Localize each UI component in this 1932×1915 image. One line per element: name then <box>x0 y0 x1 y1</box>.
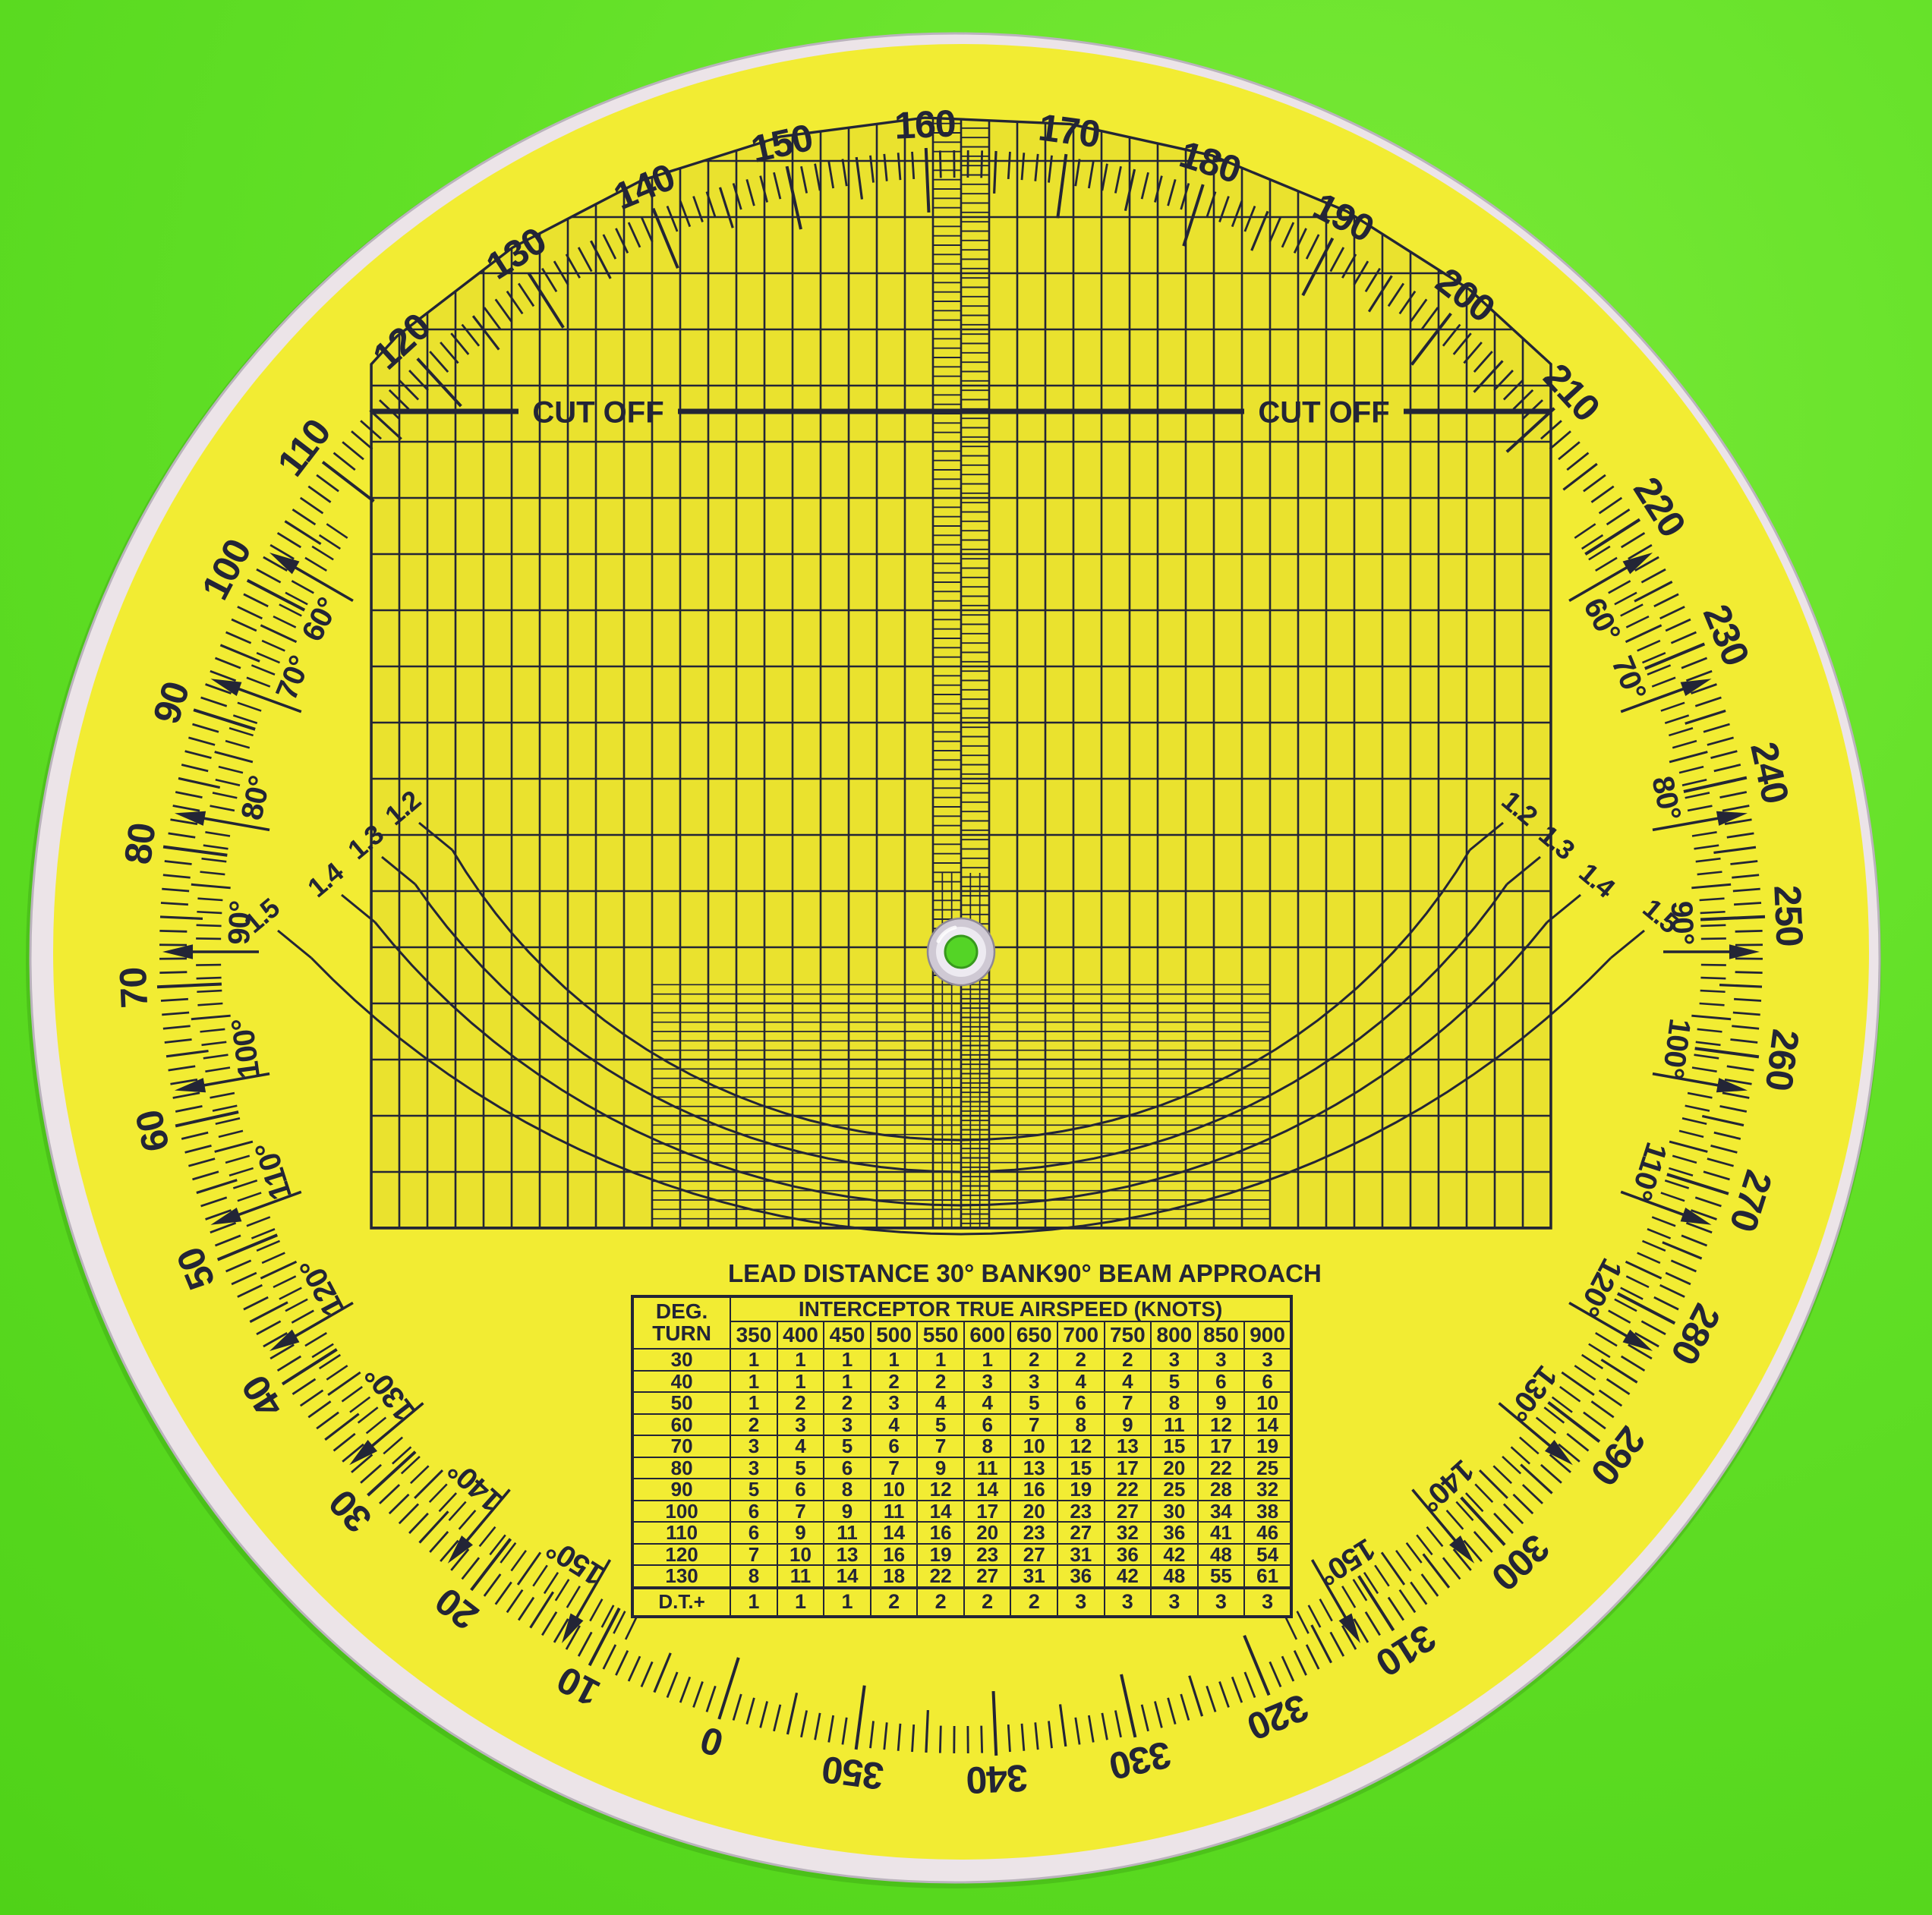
lead-distance-cell: 12 <box>917 1479 964 1501</box>
lead-distance-cell: 4 <box>964 1392 1011 1414</box>
outer-scale-label-text: 340 <box>966 1756 1029 1801</box>
speed-column-header: 550 <box>917 1321 964 1349</box>
table-row: 100679111417202327303438 <box>632 1501 1291 1523</box>
lead-distance-cell: 20 <box>964 1522 1011 1544</box>
lead-distance-cell: 3 <box>730 1457 777 1479</box>
lead-distance-cell: 48 <box>1151 1565 1198 1588</box>
lead-distance-cell: 23 <box>1057 1501 1105 1523</box>
outer-scale-label-text: 80 <box>116 820 164 866</box>
lead-distance-cell: 6 <box>777 1479 824 1501</box>
lead-distance-cell: 46 <box>1244 1522 1291 1544</box>
lead-distance-cell: 23 <box>1010 1522 1057 1544</box>
outer-scale-tick <box>159 972 187 973</box>
outer-scale-label-text: 250 <box>1766 884 1811 947</box>
outer-scale-tick <box>1735 931 1763 931</box>
lead-distance-cell: 11 <box>871 1501 918 1523</box>
lead-distance-cell: 2 <box>1057 1349 1105 1371</box>
lead-distance-cell: 54 <box>1244 1544 1291 1566</box>
lead-distance-cell: 5 <box>1151 1371 1198 1393</box>
lead-distance-cell: 14 <box>964 1479 1011 1501</box>
outer-scale-tick <box>1735 972 1763 973</box>
lead-distance-cell: 12 <box>1057 1435 1105 1457</box>
lead-distance-cell: 4 <box>1105 1371 1152 1393</box>
lead-distance-cell: 1 <box>777 1349 824 1371</box>
inner-scale-tick <box>196 965 221 965</box>
deg-turn-cell: 130 <box>632 1565 730 1588</box>
lead-distance-cell: 6 <box>1244 1371 1291 1393</box>
inner-scale-label-text: 90° <box>222 900 257 945</box>
table-row: 13081114182227313642485561 <box>632 1565 1291 1588</box>
table-row: 40111223344566 <box>632 1371 1291 1393</box>
inner-scale-tick <box>1701 938 1726 939</box>
lead-distance-cell: 11 <box>824 1522 871 1544</box>
lead-distance-cell: 1 <box>917 1349 964 1371</box>
lead-distance-cell: 1 <box>964 1349 1011 1371</box>
lead-distance-cell: 6 <box>730 1501 777 1523</box>
lead-distance-cell: 3 <box>964 1371 1011 1393</box>
lead-distance-cell: 16 <box>917 1522 964 1544</box>
dt-value-cell: 3 <box>1105 1588 1152 1617</box>
lead-distance-cell: 15 <box>1057 1457 1105 1479</box>
lead-distance-cell: 30 <box>1151 1501 1198 1523</box>
inner-scale-tick <box>1700 978 1726 978</box>
lead-distance-cell: 13 <box>1010 1457 1057 1479</box>
lead-distance-cell: 6 <box>871 1435 918 1457</box>
dt-value-cell: 3 <box>1244 1588 1291 1617</box>
cutoff-label: CUT OFF <box>1258 395 1389 429</box>
lead-distance-cell: 1 <box>730 1371 777 1393</box>
lead-distance-cell: 6 <box>1057 1392 1105 1414</box>
dt-value-cell: 2 <box>871 1588 918 1617</box>
lead-distance-cell: 18 <box>871 1565 918 1588</box>
lead-distance-cell: 11 <box>964 1457 1011 1479</box>
lead-distance-cell: 22 <box>917 1565 964 1588</box>
dt-row-label: D.T.+ <box>632 1588 730 1617</box>
lead-distance-cell: 22 <box>1198 1457 1245 1479</box>
lead-distance-cell: 10 <box>1244 1392 1291 1414</box>
lead-distance-cell: 6 <box>730 1522 777 1544</box>
outer-scale-label-text: 260 <box>1757 1027 1808 1093</box>
lead-distance-cell: 55 <box>1198 1565 1245 1588</box>
deg-turn-cell: 90 <box>632 1479 730 1501</box>
lead-distance-cell: 9 <box>824 1501 871 1523</box>
table-row: 803567911131517202225 <box>632 1457 1291 1479</box>
lead-distance-cell: 32 <box>1244 1479 1291 1501</box>
lead-distance-cell: 1 <box>871 1349 918 1371</box>
dt-value-cell: 1 <box>777 1588 824 1617</box>
speed-column-header: 600 <box>964 1321 1011 1349</box>
dt-value-cell: 3 <box>1151 1588 1198 1617</box>
lead-distance-cell: 1 <box>777 1371 824 1393</box>
lead-distance-cell: 2 <box>1010 1349 1057 1371</box>
lead-distance-cell: 14 <box>824 1565 871 1588</box>
lead-distance-cell: 1 <box>824 1371 871 1393</box>
lead-distance-cell: 8 <box>1151 1392 1198 1414</box>
table-title-right: 90° BEAM APPROACH <box>1054 1259 1322 1288</box>
dt-value-cell: 3 <box>1057 1588 1105 1617</box>
deg-turn-cell: 40 <box>632 1371 730 1393</box>
intercept-computer-photo: CUT OFFCUT OFF1.21.21.31.31.41.41.51.501… <box>0 0 1932 1915</box>
dt-value-cell: 1 <box>730 1588 777 1617</box>
lead-distance-cell: 27 <box>1105 1501 1152 1523</box>
dt-value-cell: 2 <box>917 1588 964 1617</box>
lead-distance-cell: 19 <box>1244 1435 1291 1457</box>
outer-scale-tick <box>940 1726 941 1753</box>
lead-distance-cell: 17 <box>1198 1435 1245 1457</box>
lead-distance-cell: 14 <box>871 1522 918 1544</box>
inner-scale-tick <box>197 925 222 926</box>
lead-distance-cell: 6 <box>964 1414 1011 1436</box>
inner-scale-tick <box>197 991 222 992</box>
lead-distance-cell: 48 <box>1198 1544 1245 1566</box>
lead-distance-cell: 1 <box>730 1349 777 1371</box>
deg-turn-cell: 100 <box>632 1501 730 1523</box>
lead-distance-cell: 61 <box>1244 1565 1291 1588</box>
outer-scale-label: 160 <box>894 102 957 146</box>
lead-distance-cell: 1 <box>824 1349 871 1371</box>
deg-turn-cell: 30 <box>632 1349 730 1371</box>
deg-turn-cell: 60 <box>632 1414 730 1436</box>
lead-distance-cell: 3 <box>1151 1349 1198 1371</box>
inner-scale-tick <box>197 912 222 913</box>
lead-distance-cell: 41 <box>1198 1522 1245 1544</box>
cutoff-label: CUT OFF <box>532 395 663 429</box>
lead-distance-table: DEG. TURN INTERCEPTOR TRUE AIRSPEED (KNO… <box>631 1295 1293 1618</box>
speed-column-header: 850 <box>1198 1321 1245 1349</box>
deg-turn-cell: 50 <box>632 1392 730 1414</box>
lead-distance-cell: 27 <box>1010 1544 1057 1566</box>
lead-distance-cell: 34 <box>1198 1501 1245 1523</box>
lead-distance-cell: 3 <box>730 1435 777 1457</box>
table-row: 90568101214161922252832 <box>632 1479 1291 1501</box>
lead-distance-cell: 2 <box>871 1371 918 1393</box>
lead-distance-cell: 3 <box>871 1392 918 1414</box>
lead-distance-cell: 7 <box>1010 1414 1057 1436</box>
lead-distance-cell: 5 <box>777 1457 824 1479</box>
outer-scale-label: 260 <box>1757 1027 1808 1093</box>
lead-distance-cell: 3 <box>1010 1371 1057 1393</box>
table-row: 1106911141620232732364146 <box>632 1522 1291 1544</box>
outer-scale-label-text: 160 <box>894 102 957 146</box>
dt-value-cell: 2 <box>964 1588 1011 1617</box>
lead-distance-cell: 13 <box>824 1544 871 1566</box>
lead-distance-cell: 36 <box>1151 1522 1198 1544</box>
lead-distance-cell: 25 <box>1151 1479 1198 1501</box>
speed-column-header: 350 <box>730 1321 777 1349</box>
table-title-left: LEAD DISTANCE 30° BANK <box>728 1259 1054 1288</box>
outer-scale-label-text: 70 <box>112 967 156 1009</box>
table-corner-header: DEG. TURN <box>632 1296 730 1349</box>
inner-scale-label: 90° <box>222 900 257 945</box>
lead-distance-cell: 7 <box>730 1544 777 1566</box>
lead-distance-cell: 9 <box>917 1457 964 1479</box>
lead-distance-cell: 8 <box>1057 1414 1105 1436</box>
lead-distance-cell: 17 <box>964 1501 1011 1523</box>
lead-distance-cell: 7 <box>871 1457 918 1479</box>
lead-distance-cell: 11 <box>1151 1414 1198 1436</box>
lead-distance-cell: 7 <box>1105 1392 1152 1414</box>
lead-distance-cell: 23 <box>964 1544 1011 1566</box>
dt-row: D.T.+111222233333 <box>632 1588 1291 1617</box>
lead-distance-cell: 11 <box>777 1565 824 1588</box>
lead-distance-cell: 28 <box>1198 1479 1245 1501</box>
lead-distance-cell: 25 <box>1244 1457 1291 1479</box>
lead-distance-cell: 14 <box>1244 1414 1291 1436</box>
lead-distance-cell: 8 <box>964 1435 1011 1457</box>
inner-scale-label: 90° <box>1665 900 1700 945</box>
lead-distance-cell: 13 <box>1105 1435 1152 1457</box>
lead-distance-cell: 31 <box>1057 1544 1105 1566</box>
lead-distance-cell: 16 <box>1010 1479 1057 1501</box>
deg-turn-cell: 120 <box>632 1544 730 1566</box>
lead-distance-cell: 5 <box>1010 1392 1057 1414</box>
table-row: 501223445678910 <box>632 1392 1291 1414</box>
lead-distance-cell: 3 <box>1198 1349 1245 1371</box>
deg-turn-cell: 80 <box>632 1457 730 1479</box>
lead-distance-cell: 42 <box>1151 1544 1198 1566</box>
outer-scale-label: 170 <box>1036 106 1102 156</box>
lead-distance-cell: 16 <box>871 1544 918 1566</box>
lead-distance-cell: 4 <box>777 1435 824 1457</box>
outer-scale-tick <box>982 150 982 178</box>
lead-distance-cell: 17 <box>1105 1457 1152 1479</box>
lead-distance-cell: 5 <box>917 1414 964 1436</box>
lead-distance-cell: 7 <box>777 1501 824 1523</box>
speed-column-header: 750 <box>1105 1321 1152 1349</box>
deg-turn-cell: 70 <box>632 1435 730 1457</box>
lead-distance-cell: 31 <box>1010 1565 1057 1588</box>
outer-scale-label-text: 170 <box>1036 106 1102 156</box>
lead-distance-cell: 36 <box>1105 1544 1152 1566</box>
dt-value-cell: 2 <box>1010 1588 1057 1617</box>
lead-distance-cell: 4 <box>871 1414 918 1436</box>
table-row: 12071013161923273136424854 <box>632 1544 1291 1566</box>
lead-distance-cell: 27 <box>964 1565 1011 1588</box>
inner-scale-tick <box>1701 965 1726 965</box>
speed-column-header: 400 <box>777 1321 824 1349</box>
lead-distance-cell: 7 <box>917 1435 964 1457</box>
inner-scale-tick <box>1700 912 1726 913</box>
inner-scale-label-text: 90° <box>1665 900 1700 945</box>
speed-column-header: 900 <box>1244 1321 1291 1349</box>
table-row: 70345678101213151719 <box>632 1435 1291 1457</box>
lead-distance-cell: 10 <box>777 1544 824 1566</box>
speed-column-header: 800 <box>1151 1321 1198 1349</box>
lead-distance-cell: 42 <box>1105 1565 1152 1588</box>
lead-distance-cell: 2 <box>917 1371 964 1393</box>
outer-scale-tick <box>940 150 941 178</box>
outer-scale-label: 350 <box>820 1748 886 1798</box>
lead-distance-cell: 2 <box>1105 1349 1152 1371</box>
lead-distance-cell: 20 <box>1010 1501 1057 1523</box>
lead-distance-cell: 9 <box>777 1522 824 1544</box>
speed-column-header: 700 <box>1057 1321 1105 1349</box>
lead-distance-cell: 3 <box>824 1414 871 1436</box>
lead-distance-cell: 2 <box>824 1392 871 1414</box>
outer-scale-label: 80 <box>116 820 164 866</box>
lead-distance-cell: 22 <box>1105 1479 1152 1501</box>
lead-distance-cell: 3 <box>777 1414 824 1436</box>
outer-scale-label: 340 <box>966 1756 1029 1801</box>
dt-value-cell: 3 <box>1198 1588 1245 1617</box>
center-grommet <box>928 918 994 985</box>
lead-distance-cell: 10 <box>1010 1435 1057 1457</box>
lead-distance-cell: 27 <box>1057 1522 1105 1544</box>
lead-distance-cell: 5 <box>824 1435 871 1457</box>
lead-distance-cell: 4 <box>1057 1371 1105 1393</box>
lead-distance-cell: 3 <box>1244 1349 1291 1371</box>
lead-distance-cell: 36 <box>1057 1565 1105 1588</box>
inner-scale-tick <box>196 938 221 939</box>
lead-distance-cell: 6 <box>1198 1371 1245 1393</box>
outer-scale-tick <box>159 931 187 931</box>
lead-distance-cell: 2 <box>730 1414 777 1436</box>
inner-scale-tick <box>1700 925 1726 926</box>
outer-scale-label: 250 <box>1766 884 1811 947</box>
lead-distance-cell: 38 <box>1244 1501 1291 1523</box>
deg-turn-cell: 110 <box>632 1522 730 1544</box>
lead-distance-cell: 19 <box>917 1544 964 1566</box>
table-span-header: INTERCEPTOR TRUE AIRSPEED (KNOTS) <box>730 1296 1291 1321</box>
lead-distance-cell: 9 <box>1198 1392 1245 1414</box>
table-row: 60233456789111214 <box>632 1414 1291 1436</box>
grommet-hole <box>945 936 977 968</box>
lead-distance-cell: 32 <box>1105 1522 1152 1544</box>
outer-scale-tick <box>982 1726 982 1753</box>
inner-scale-tick <box>197 978 222 978</box>
outer-scale-label-text: 350 <box>820 1748 886 1798</box>
lead-distance-cell: 8 <box>730 1565 777 1588</box>
speed-column-header: 450 <box>824 1321 871 1349</box>
lead-distance-cell: 4 <box>917 1392 964 1414</box>
lead-distance-cell: 19 <box>1057 1479 1105 1501</box>
outer-scale-label: 70 <box>112 967 156 1009</box>
speed-column-header: 500 <box>871 1321 918 1349</box>
lead-distance-cell: 10 <box>871 1479 918 1501</box>
lead-distance-cell: 2 <box>777 1392 824 1414</box>
lead-distance-cell: 6 <box>824 1457 871 1479</box>
inner-scale-tick <box>1700 991 1726 992</box>
lead-distance-cell: 15 <box>1151 1435 1198 1457</box>
lead-distance-cell: 5 <box>730 1479 777 1501</box>
lead-distance-cell: 9 <box>1105 1414 1152 1436</box>
lead-distance-cell: 20 <box>1151 1457 1198 1479</box>
speed-column-header: 650 <box>1010 1321 1057 1349</box>
computer-disc: CUT OFFCUT OFF1.21.21.31.31.41.41.51.501… <box>0 0 1932 1915</box>
table-row: 30111111222333 <box>632 1349 1291 1371</box>
lead-distance-cell: 8 <box>824 1479 871 1501</box>
lead-distance-cell: 1 <box>730 1392 777 1414</box>
lead-distance-cell: 12 <box>1198 1414 1245 1436</box>
lead-distance-cell: 14 <box>917 1501 964 1523</box>
table-title: LEAD DISTANCE 30° BANK 90° BEAM APPROACH <box>631 1257 1293 1290</box>
dt-value-cell: 1 <box>824 1588 871 1617</box>
